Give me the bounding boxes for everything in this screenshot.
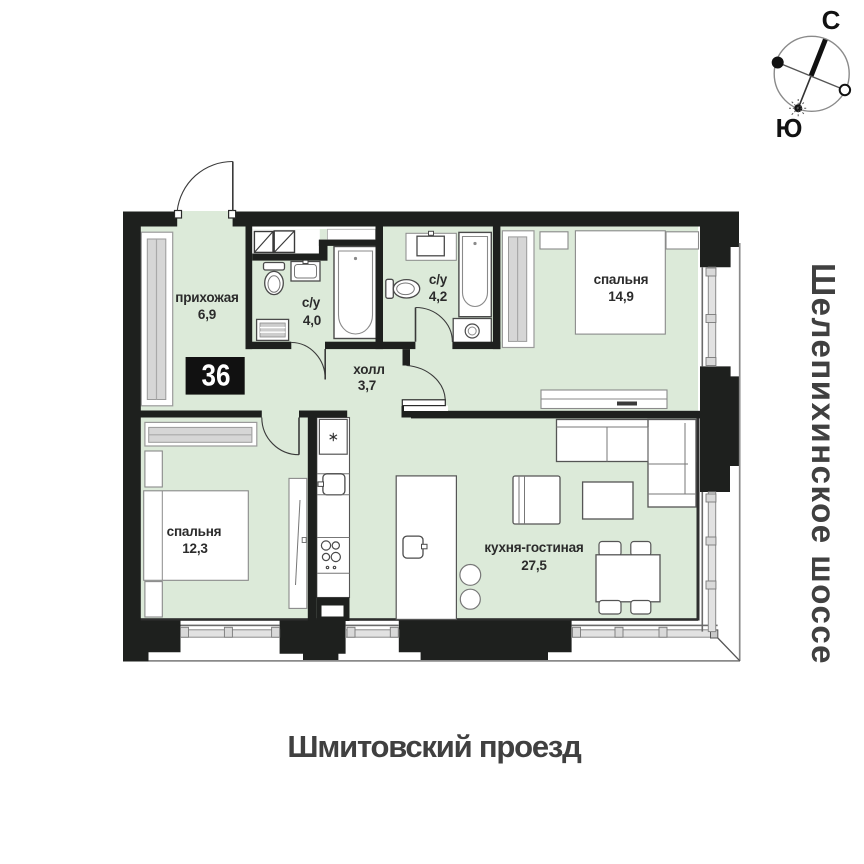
svg-text:С: С <box>822 5 841 35</box>
svg-text:с/у: с/у <box>429 272 448 287</box>
svg-text:спальня: спальня <box>167 524 222 539</box>
svg-text:с/у: с/у <box>302 295 321 310</box>
svg-text:6,9: 6,9 <box>198 307 216 322</box>
svg-text:Шелепихинское шоссе: Шелепихинское шоссе <box>805 263 842 665</box>
svg-text:36: 36 <box>202 358 231 393</box>
svg-text:Ю: Ю <box>776 113 803 143</box>
svg-text:кухня-гостиная: кухня-гостиная <box>484 540 583 555</box>
svg-text:3,7: 3,7 <box>358 378 376 393</box>
svg-text:прихожая: прихожая <box>175 290 238 305</box>
svg-text:холл: холл <box>353 362 384 377</box>
svg-text:спальня: спальня <box>594 272 649 287</box>
svg-text:27,5: 27,5 <box>521 558 547 573</box>
svg-text:Шмитовский проезд: Шмитовский проезд <box>287 729 582 764</box>
svg-text:4,2: 4,2 <box>429 289 447 304</box>
svg-text:14,9: 14,9 <box>608 289 633 304</box>
svg-text:12,3: 12,3 <box>182 541 208 556</box>
svg-text:4,0: 4,0 <box>303 313 321 328</box>
